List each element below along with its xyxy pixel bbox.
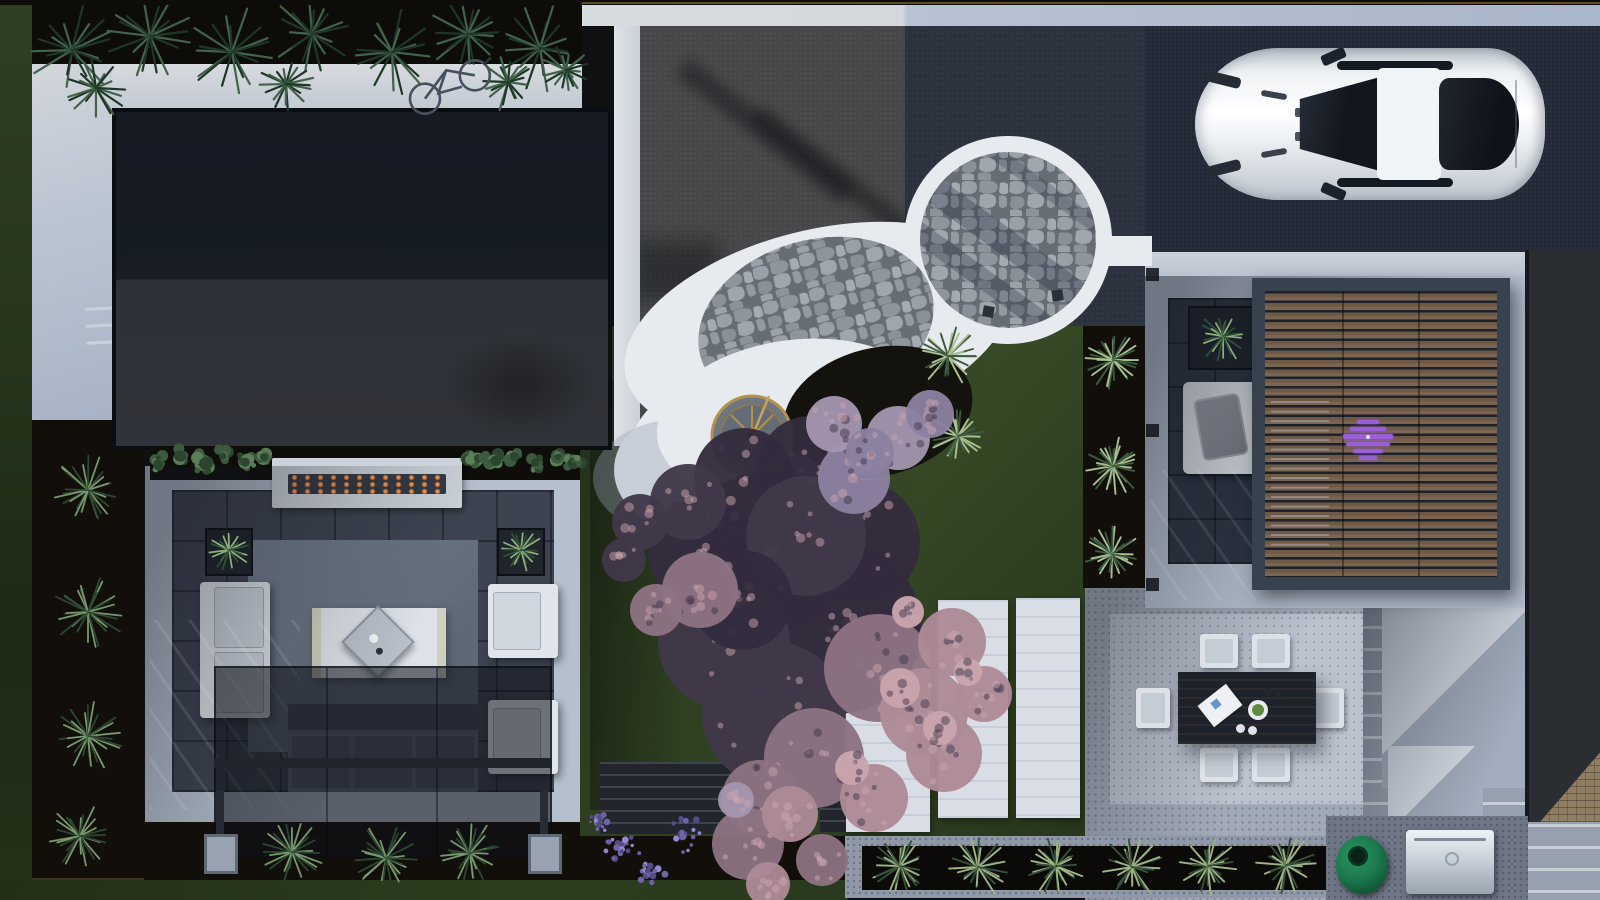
dining-chair [1200,634,1238,668]
kamado-vent [1348,846,1368,866]
louver-sheen [1271,401,1329,551]
dining-chair [1200,748,1238,782]
pergola-flower-decor [1338,418,1398,464]
cup [1236,724,1245,733]
chair-pad [1141,693,1165,723]
white-sports-car [1195,48,1545,200]
chair-pad [1315,693,1339,723]
car-rear-window [1439,78,1519,170]
house-roof-tree-shadow [440,330,600,440]
courtyard-asphalt-shaded [905,26,1145,326]
house-side-walkway [614,26,640,446]
louver-seam [1418,291,1420,577]
chair-pad [1205,639,1233,663]
wood-deck-strip [600,762,748,834]
courtyard-asphalt-sunlit [638,26,905,420]
flower-bar [1353,449,1383,453]
bbq-knob [1445,852,1459,866]
side-mulch-bed [32,420,144,878]
entry-path-vertical [32,64,114,422]
yucca-strip-bed [1083,326,1147,588]
chair-pad [1205,753,1233,777]
flower-bar [1359,456,1377,460]
dining-chair [1136,688,1170,728]
chair-pad [1257,639,1285,663]
stepping-slab [1016,598,1080,818]
glass [1264,688,1271,695]
wood-deck-strip [820,752,846,832]
flower-bar [1346,442,1390,446]
top-gold-trim [582,2,1600,4]
chair-pad [1257,753,1285,777]
stepping-slab [938,600,1008,818]
aerial-render-scene [0,0,1600,900]
kamado-grill [1336,836,1388,894]
flower-center [1366,435,1370,439]
post-footing [528,834,562,874]
car-trunk-seam [1515,80,1517,168]
fern-bed [32,4,582,66]
cup [1248,726,1257,735]
dining-table [1178,672,1316,744]
shrub-shadow-on-asphalt [630,240,720,300]
stepping-slab [845,652,930,832]
left-lawn-strip [0,0,32,900]
entry-path-horizontal [112,64,582,110]
bbq-grill [1406,830,1494,894]
dining-chair [1252,634,1290,668]
car-roof [1377,68,1441,180]
street-wall-band [582,4,1600,26]
glass [1274,692,1281,699]
pergola-beam [214,758,552,768]
flower-bar [1350,427,1386,431]
bbq-handle [1414,838,1486,841]
dining-chair [1252,748,1290,782]
salad-bowl [1252,704,1264,716]
planter-soil [862,846,1332,890]
neighbor-roof [1525,250,1600,822]
flower-bar [1357,420,1379,424]
post-footing [204,834,238,874]
bottom-grass-strip [0,880,848,900]
